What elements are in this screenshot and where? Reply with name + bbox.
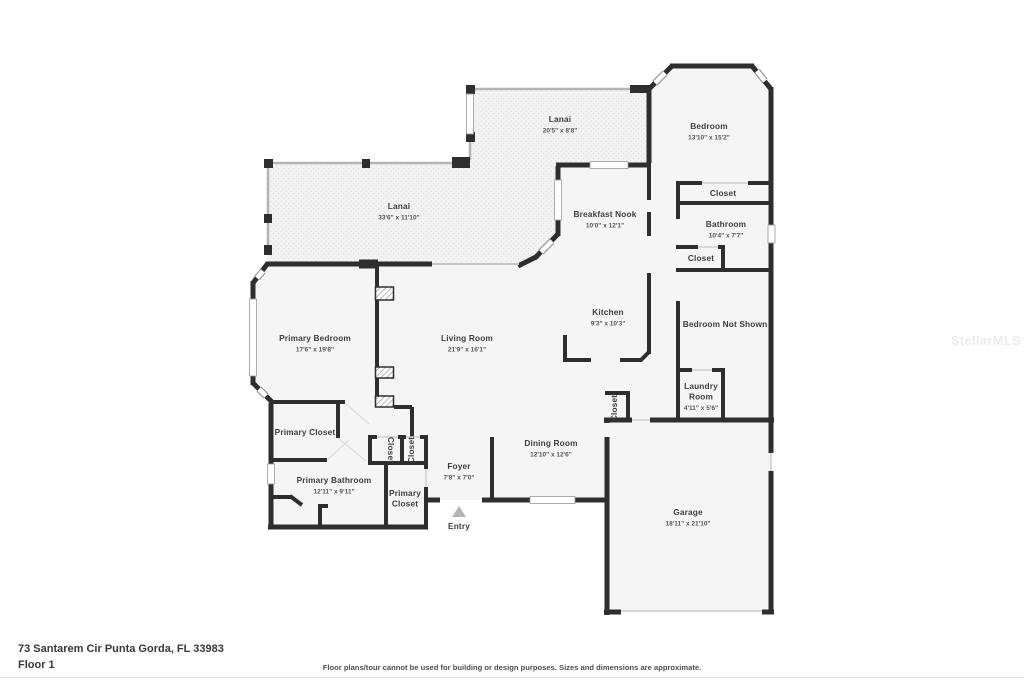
stellar-mls-watermark: StellarMLS: [951, 333, 1021, 348]
room-label-primary-closet-lower: PrimaryCloset: [389, 488, 421, 509]
room-label-entry: Entry: [448, 521, 470, 531]
floorplan-page: Lanai20'5" x 8'8"Bedroom13'10" x 15'2"La…: [0, 0, 1024, 682]
entry-arrow-icon: [452, 506, 466, 517]
disclaimer-text: Floor plans/tour cannot be used for buil…: [0, 663, 1024, 672]
room-label-closet-hall-2: Closet: [406, 437, 416, 463]
room-label-closet-laundry: Closet: [609, 395, 619, 421]
bottom-divider: [0, 677, 1024, 678]
room-label-closet-bathroom: Closet: [688, 253, 714, 263]
room-label-bedroom-not-shown: Bedroom Not Shown: [683, 319, 768, 329]
property-address: 73 Santarem Cir Punta Gorda, FL 33983: [18, 643, 224, 655]
room-label-laundry-room: LaundryRoom4'11" x 5'6": [684, 381, 718, 412]
floor-plan: Lanai20'5" x 8'8"Bedroom13'10" x 15'2"La…: [0, 0, 1024, 682]
room-label-primary-closet-upper: Primary Closet: [275, 427, 336, 437]
room-label-closet-bedroom: Closet: [710, 188, 736, 198]
room-label-closet-hall-1: Closet: [386, 437, 396, 463]
